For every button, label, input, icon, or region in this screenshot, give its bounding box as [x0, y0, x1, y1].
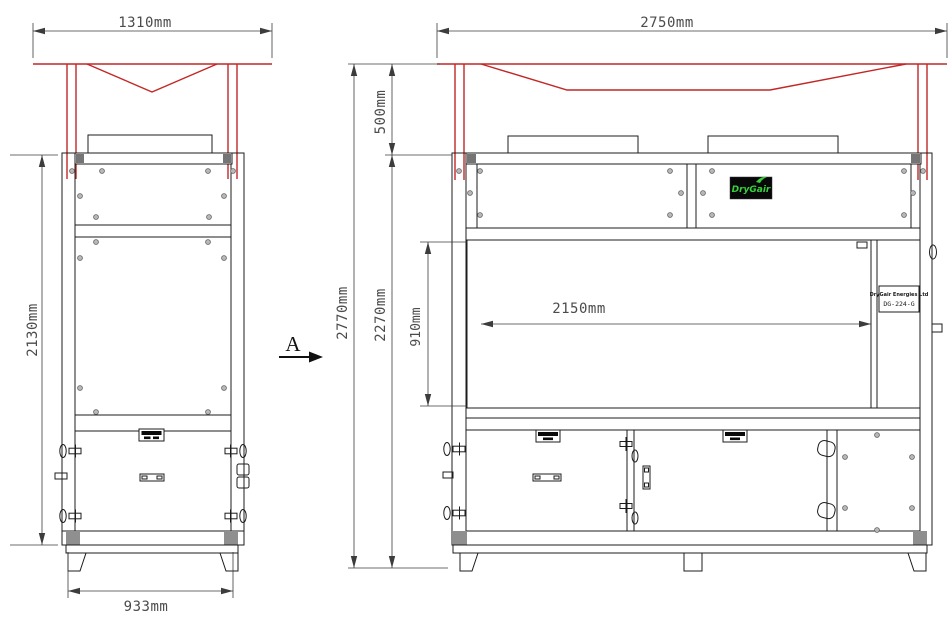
warning-label: [139, 429, 164, 441]
hinge-icon: [930, 245, 937, 259]
warning-label: [723, 430, 747, 442]
warning-label: [536, 430, 560, 442]
hinge-icon: [60, 510, 81, 523]
side-tab: [55, 473, 67, 479]
side-cabinet-frame: [452, 153, 932, 545]
drygair-logo: DryGair: [730, 177, 772, 199]
dimension-side-top-width: 2750mm: [437, 15, 947, 58]
vertical-handle: [643, 466, 650, 489]
front-base: [66, 531, 238, 571]
hinge-icon: [444, 507, 465, 520]
side-base: [453, 531, 927, 571]
section-arrow-a: A: [279, 332, 323, 363]
front-screws: [70, 169, 236, 415]
dim-label: 2130mm: [25, 303, 41, 357]
nameplate-company: DryGair Energies Ltd: [870, 292, 929, 298]
d-latch: [816, 501, 836, 520]
logo-text: DryGair: [732, 185, 771, 195]
dimension-overall-height: 2770mm: [335, 64, 448, 568]
front-door: [55, 429, 249, 523]
dimension-canopy-height: 500mm: [373, 64, 452, 155]
front-fan-grille: [88, 135, 212, 154]
dim-label: 500mm: [373, 90, 389, 135]
dimension-front-cabinet-height: 2130mm: [10, 155, 58, 545]
door-handle: [533, 474, 561, 481]
dimension-front-base-width: 933mm: [68, 552, 233, 615]
door-handle: [140, 474, 164, 481]
dimension-louver-width: 2150mm: [481, 300, 871, 324]
drawing-canvas: DryGair DryGair Energies Ltd DG-224-G: [0, 0, 950, 626]
hinge-icon: [225, 445, 246, 458]
side-doors: [443, 430, 914, 532]
side-panel-screws: [843, 433, 915, 533]
dim-label: 2270mm: [373, 288, 389, 342]
front-view: [33, 64, 272, 571]
side-fan-grille-left: [508, 136, 638, 154]
arrow-right-icon: [309, 352, 323, 363]
side-top-screws: [457, 169, 926, 218]
dimension-cabinet-height: 2270mm: [373, 155, 392, 568]
nameplate-model: DG-224-G: [883, 300, 914, 308]
door-latch: [237, 464, 249, 488]
side-tab: [932, 324, 942, 332]
hinge-icon: [225, 510, 246, 523]
dim-label: 910mm: [409, 307, 424, 346]
divider-hinge-bottom: [620, 499, 638, 524]
side-fan-grille-right: [708, 136, 838, 154]
front-top-bar: [75, 153, 232, 164]
dim-label: 2150mm: [552, 301, 606, 317]
dim-label: 2750mm: [640, 15, 694, 31]
side-view: DryGair DryGair Energies Ltd DG-224-G: [437, 64, 947, 571]
d-latch: [816, 439, 836, 458]
front-cabinet-frame: [62, 153, 244, 545]
dimension-front-top-width: 1310mm: [33, 15, 272, 58]
section-label: A: [285, 332, 301, 356]
side-top-bar: [466, 153, 921, 164]
dim-label: 1310mm: [118, 15, 172, 31]
dim-label: 933mm: [124, 599, 169, 615]
divider-hinge-top: [620, 437, 638, 462]
hinge-icon: [444, 443, 465, 456]
hinge-icon: [60, 445, 81, 458]
dim-label: 2770mm: [335, 286, 351, 340]
technical-drawing: DryGair DryGair Energies Ltd DG-224-G: [0, 0, 950, 626]
dimension-louver-height: 910mm: [409, 242, 467, 406]
